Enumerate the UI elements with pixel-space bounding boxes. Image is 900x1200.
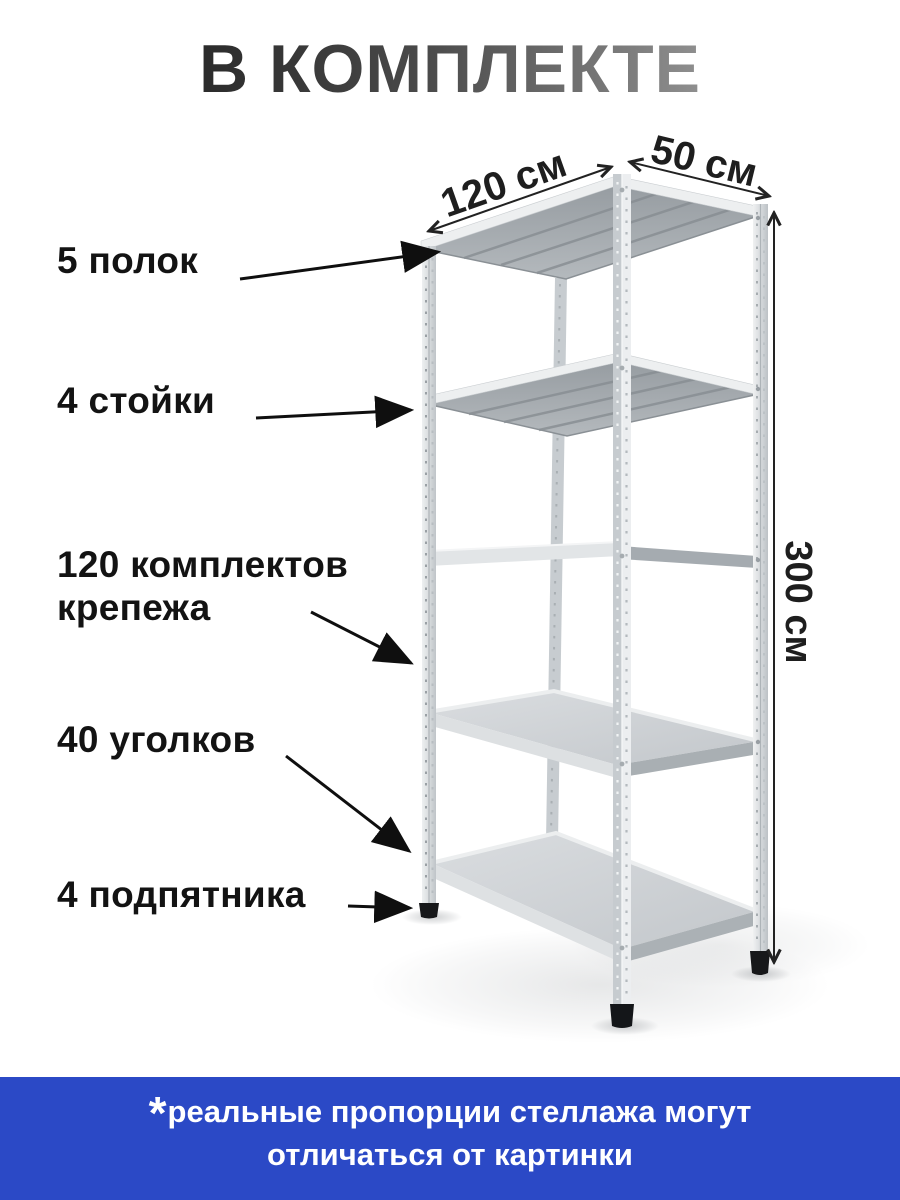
callout-posts: 4 стойки (57, 379, 215, 422)
callout-arrow-corners (286, 756, 409, 851)
rack-post-right (750, 204, 770, 975)
asterisk-mark: * (149, 1087, 167, 1139)
title-row: В КОМПЛЕКТЕ (0, 30, 900, 108)
depth-dimension-label: 50 см (647, 127, 762, 195)
callout-arrow-feet (348, 906, 410, 908)
callout-fasteners: 120 комплектов крепежа (57, 543, 447, 629)
foot-right (750, 951, 770, 975)
rack-post-front (610, 174, 634, 1028)
shelf-2 (427, 353, 759, 436)
callout-shelves: 5 полок (57, 239, 198, 282)
callout-arrow-posts (256, 410, 411, 418)
shelf-4 (428, 691, 759, 778)
callout-corners: 40 уголков (57, 718, 256, 761)
page-title: В КОМПЛЕКТЕ (199, 30, 701, 108)
disclaimer-banner: *реальные пропорции стеллажа могут отлич… (0, 1077, 900, 1200)
callout-arrow-shelves (240, 252, 438, 279)
shelf-3 (428, 542, 757, 568)
foot-front (610, 1004, 634, 1028)
callout-feet: 4 подпятника (57, 873, 306, 916)
disclaimer-text: реальные пропорции стеллажа могут отлича… (168, 1094, 752, 1172)
height-dimension-label: 300 см (777, 540, 819, 663)
foot-left (419, 903, 439, 919)
disclaimer-text-block: *реальные пропорции стеллажа могут отлич… (120, 1090, 780, 1176)
product-infographic: В КОМПЛЕКТЕ (0, 0, 900, 1200)
